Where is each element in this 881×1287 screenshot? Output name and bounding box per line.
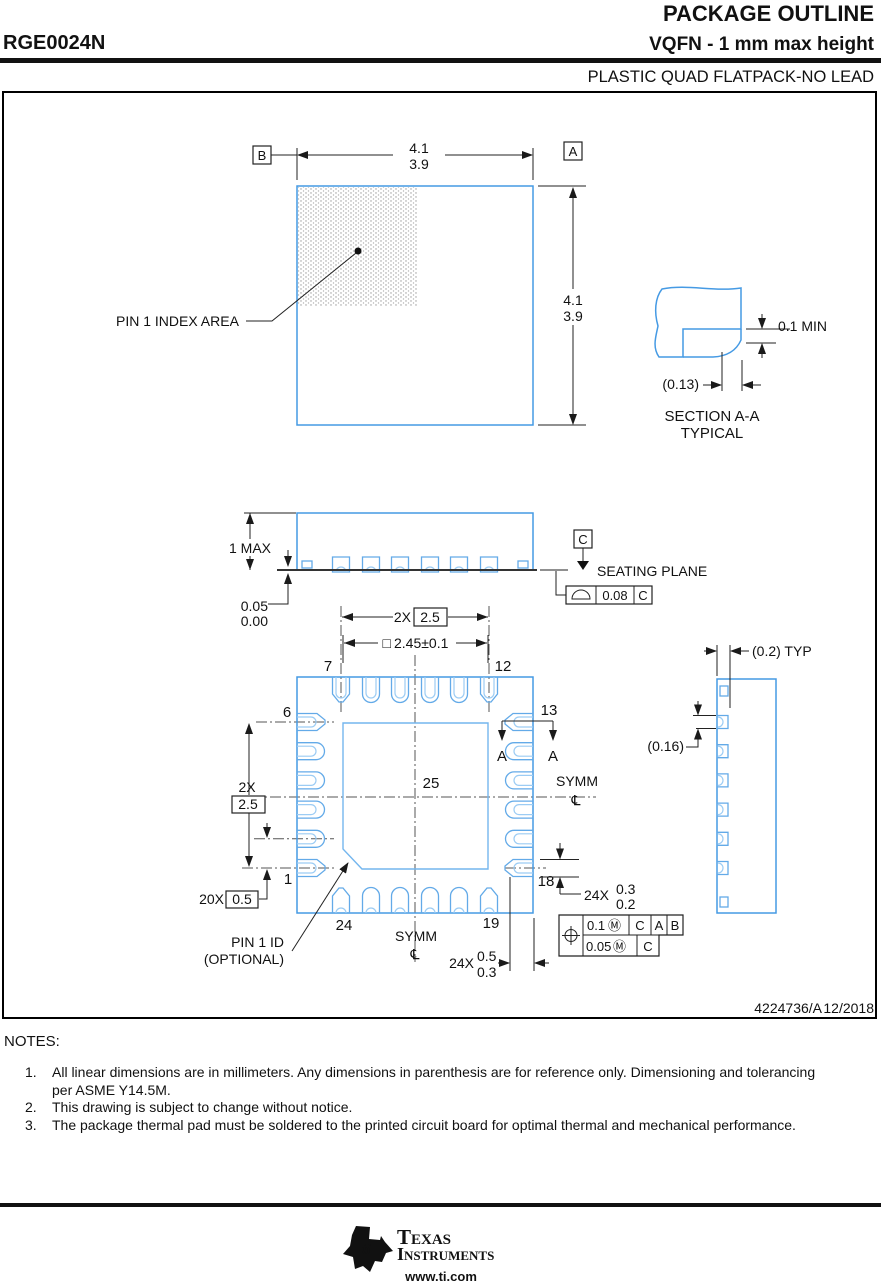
- datasheet-page: PACKAGE OUTLINE RGE0024N VQFN - 1 mm max…: [0, 0, 881, 1287]
- fcf1-datum-b: B: [671, 918, 680, 933]
- lead-pad: [718, 717, 723, 727]
- lead-pad: [718, 775, 723, 785]
- pin-7-label: 7: [324, 658, 332, 675]
- lead-pad: [392, 888, 409, 914]
- side-view: 1 MAX 0.05 0.00 C SEATING PLANE 0.08 C: [224, 513, 707, 629]
- lead-pad: [514, 805, 533, 815]
- standoff-min: 0.00: [241, 613, 268, 629]
- technical-drawing: PIN 1 INDEX AREA 4.1 3.9 B A 4.1 3.9: [0, 90, 881, 1020]
- seating-plane-datum-triangle: [577, 561, 589, 570]
- pad-gap-dim: (0.16): [647, 738, 684, 754]
- col-pitch-value: 2.5: [238, 796, 258, 812]
- thermal-square-symbol: □: [383, 635, 392, 651]
- flatness-datum: C: [638, 588, 647, 603]
- note-item: 3. The package thermal pad must be solde…: [0, 1117, 875, 1135]
- lead-pad: [718, 746, 723, 756]
- lead-pad: [297, 775, 316, 785]
- ti-monogram: ti: [362, 1241, 372, 1257]
- lead-pad: [422, 677, 439, 703]
- lead-pad: [333, 888, 350, 913]
- note-number: 1.: [0, 1064, 52, 1099]
- section-mark-left: A: [497, 748, 507, 765]
- lead-pad: [481, 888, 498, 913]
- note-text: The package thermal pad must be soldered…: [52, 1117, 875, 1135]
- pin-6-label: 6: [283, 704, 291, 721]
- wettable-flank-dim: (0.13): [662, 376, 699, 392]
- leads-left-column: [297, 714, 325, 877]
- lead-length-max: 0.5: [477, 948, 497, 964]
- lead-pad: [395, 677, 405, 698]
- lead-pad: [514, 746, 533, 756]
- pad-offset-dim: (0.2) TYP: [752, 643, 812, 659]
- section-subtitle: TYPICAL: [681, 425, 744, 442]
- drawing-frame: [3, 92, 876, 1018]
- thermal-pad-number: 25: [423, 775, 440, 792]
- lead-pad: [297, 801, 325, 818]
- lead-pad: [514, 775, 533, 785]
- pin1-index-label: PIN 1 INDEX AREA: [116, 313, 240, 329]
- symm-bottom-label: SYMM: [395, 928, 437, 944]
- standoff-max: 0.05: [241, 598, 268, 614]
- lead-pad: [718, 834, 723, 844]
- note-number: 2.: [0, 1099, 52, 1117]
- lead-pad: [506, 743, 534, 760]
- part-number: RGE0024N: [3, 32, 105, 55]
- datum-b: B: [258, 148, 267, 163]
- note-text: per ASME Y14.5M.: [52, 1082, 875, 1100]
- flatness-tolerance: 0.08: [602, 588, 627, 603]
- note-text: This drawing is subject to change withou…: [52, 1099, 875, 1117]
- lead-pad: [514, 717, 533, 727]
- pin-24-label: 24: [336, 917, 353, 934]
- row-pitch-qty: 2X: [394, 609, 412, 625]
- fcf2-datum-c: C: [643, 939, 652, 954]
- symm-bottom-centerline-symbol: ℄: [410, 946, 420, 962]
- lead-pad: [363, 677, 380, 703]
- notes-heading: NOTES:: [4, 1033, 60, 1050]
- col-pitch-qty: 2X: [238, 779, 256, 795]
- lead-length-qty: 24X: [449, 955, 475, 971]
- lead-pad: [718, 863, 723, 873]
- section-mark-right: A: [548, 748, 558, 765]
- lead-pad: [506, 801, 534, 818]
- note-item: 1. All linear dimensions are in millimet…: [0, 1064, 875, 1099]
- fcf1-datum-c: C: [635, 918, 644, 933]
- lead-pad: [454, 677, 464, 698]
- lead-pitch-qty: 20X: [199, 891, 225, 907]
- lead-pad: [392, 677, 409, 703]
- package-body-detail: [717, 679, 776, 913]
- symm-right-label: SYMM: [556, 773, 598, 789]
- lead-pad: [297, 746, 316, 756]
- fcf2-tolerance: 0.05: [586, 939, 611, 954]
- notes-list: 1. All linear dimensions are in millimet…: [0, 1064, 875, 1134]
- body-height-min: 3.9: [563, 308, 583, 324]
- lead-pad: [514, 834, 533, 844]
- revision-date: 12/2018: [823, 1000, 874, 1016]
- lead-pad: [363, 888, 380, 914]
- symm-right-centerline-symbol: ℄: [571, 792, 581, 808]
- bottom-view: 2X 2.5 □ 2.45±0.1 7 12 6 13 1 18 24 19 2…: [199, 606, 683, 980]
- lead-width-max: 0.3: [616, 881, 636, 897]
- row-pitch-value: 2.5: [420, 609, 440, 625]
- brand-wordmark: Texas Instruments: [397, 1229, 494, 1263]
- body-width-min: 3.9: [409, 156, 429, 172]
- lead-thickness-dim: 0.1 MIN: [778, 318, 827, 334]
- pin-1-label: 1: [284, 871, 292, 888]
- brand-line2: Instruments: [397, 1246, 494, 1263]
- lead-profile: [683, 329, 741, 357]
- footer-divider: [0, 1203, 881, 1207]
- pin-13-label: 13: [541, 702, 558, 719]
- lead-pad: [506, 830, 534, 847]
- section-title: SECTION A-A: [664, 408, 759, 425]
- top-view: PIN 1 INDEX AREA 4.1 3.9 B A 4.1 3.9: [116, 140, 594, 425]
- detail-view-leads: [717, 716, 728, 875]
- lead-pad: [425, 677, 435, 698]
- feature-control-frame: 0.1 Ⓜ C A B 0.05 Ⓜ C: [559, 915, 683, 956]
- lead-pad: [422, 888, 439, 914]
- lead-width-qty: 24X: [584, 887, 610, 903]
- lead-length-min: 0.3: [477, 964, 497, 980]
- fcf1-tolerance: 0.1: [587, 918, 605, 933]
- package-variant: VQFN - 1 mm max height: [649, 34, 874, 56]
- pin1-index-stipple: [298, 187, 417, 306]
- lead-pitch-value: 0.5: [232, 891, 252, 907]
- leads-right-column: [505, 714, 533, 877]
- package-family: PLASTIC QUAD FLATPACK-NO LEAD: [588, 68, 874, 87]
- pin-19-label: 19: [483, 915, 500, 932]
- thermal-pad-size: 2.45±0.1: [394, 635, 449, 651]
- section-hatch-body: [655, 287, 741, 357]
- note-text: All linear dimensions are in millimeters…: [52, 1064, 875, 1082]
- drawing-id: 4224736/A: [754, 1000, 822, 1016]
- lead-pad: [297, 743, 325, 760]
- lead-pad: [506, 772, 534, 789]
- note-item: 2. This drawing is subject to change wit…: [0, 1099, 875, 1117]
- page-title: PACKAGE OUTLINE: [663, 1, 874, 27]
- pin1-id-label-line1: PIN 1 ID: [231, 934, 284, 950]
- fcf1-datum-a: A: [655, 918, 664, 933]
- height-max-dim: 1 MAX: [229, 540, 272, 556]
- lead-detail-view: (0.2) TYP (0.16): [647, 643, 811, 913]
- datum-c: C: [578, 532, 587, 547]
- lead-pad: [297, 772, 325, 789]
- note-number: 3.: [0, 1117, 52, 1135]
- body-height-max: 4.1: [563, 292, 583, 308]
- body-width-max: 4.1: [409, 140, 429, 156]
- lead-pad: [505, 714, 533, 731]
- lead-width-min: 0.2: [616, 896, 636, 912]
- section-aa-view: 0.1 MIN (0.13) SECTION A-A TYPICAL: [655, 287, 827, 442]
- lead-pad: [366, 677, 376, 698]
- lead-pad: [451, 888, 468, 914]
- pin1-id-label-line2: (OPTIONAL): [204, 951, 284, 967]
- ti-logo-icon: ti: [341, 1225, 395, 1273]
- pin-12-label: 12: [495, 658, 512, 675]
- lead-pad: [297, 805, 316, 815]
- datum-a: A: [569, 144, 578, 159]
- website-link[interactable]: www.ti.com: [391, 1269, 491, 1284]
- pin-18-label: 18: [538, 873, 555, 890]
- lead-pad: [451, 677, 468, 703]
- fcf2-mmc-modifier: Ⓜ: [613, 939, 626, 954]
- fcf1-mmc-modifier: Ⓜ: [608, 918, 621, 933]
- lead-pad: [718, 805, 723, 815]
- header-divider: [0, 58, 881, 63]
- seating-plane-label: SEATING PLANE: [597, 563, 707, 579]
